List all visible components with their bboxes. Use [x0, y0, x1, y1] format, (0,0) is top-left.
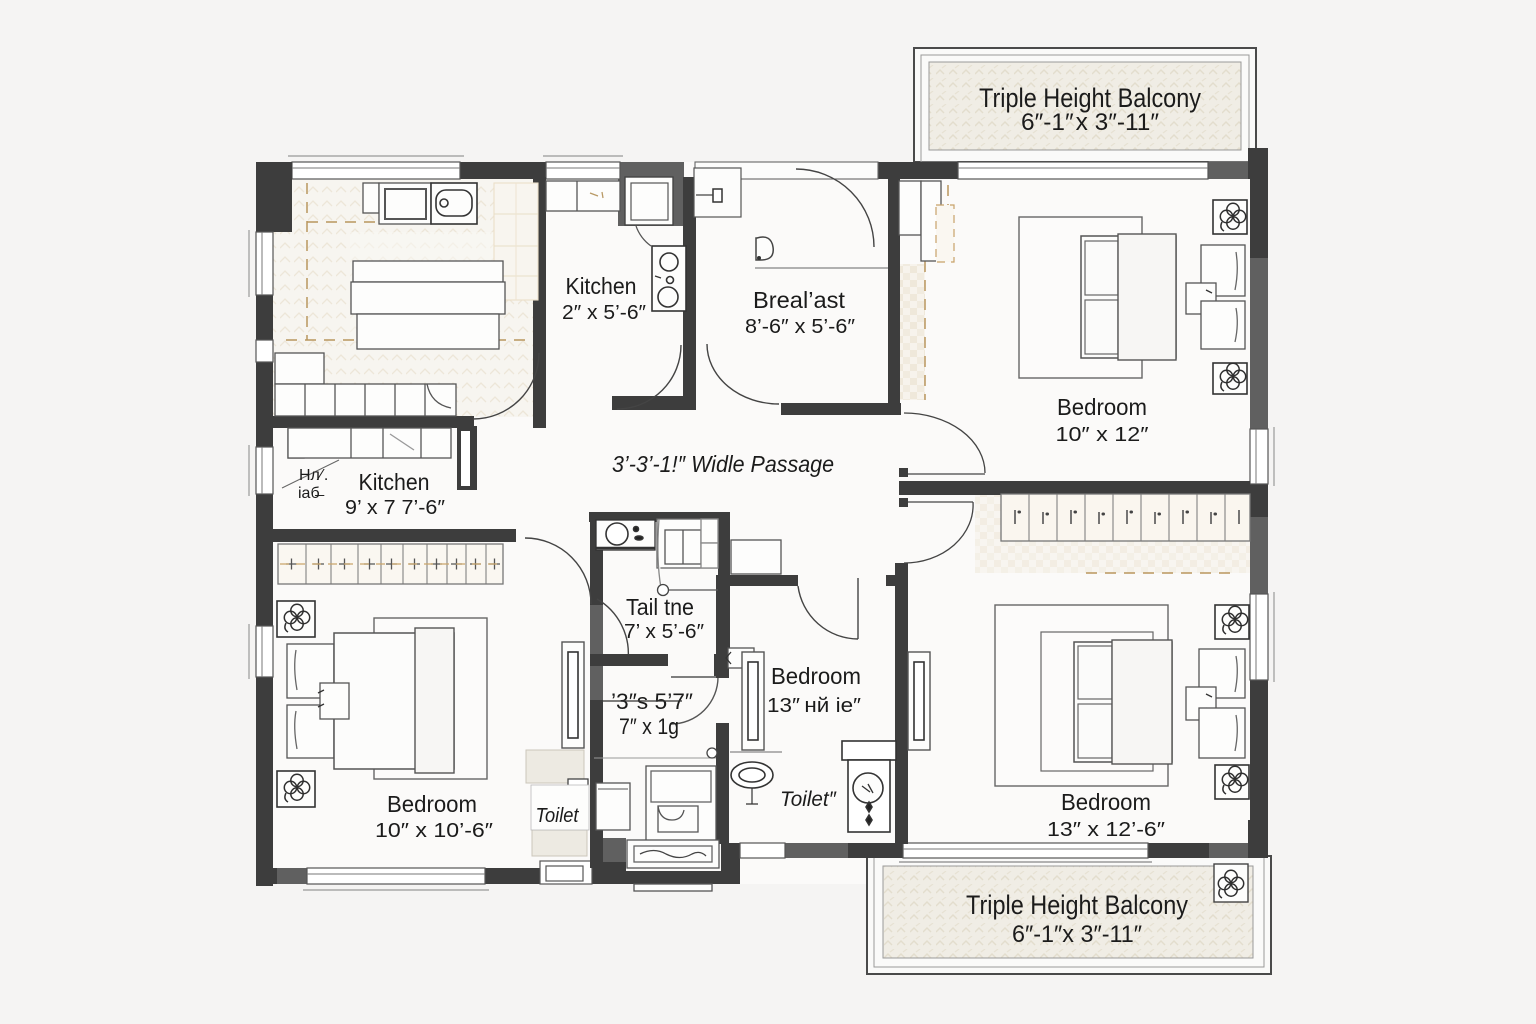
svg-text:Bedroom: Bedroom	[771, 663, 861, 689]
svg-text:13″ нй іe″: 13″ нй іe″	[767, 695, 861, 717]
svg-text:2″ x 5’-6″: 2″ x 5’-6″	[562, 302, 646, 324]
svg-text:Bedroom: Bedroom	[1061, 789, 1151, 815]
svg-text:13″ x 12’-6″: 13″ x 12’-6″	[1047, 819, 1165, 841]
svg-text:Нл∕ .: Нл∕ .	[299, 467, 328, 484]
svg-text:Kitchen: Kitchen	[566, 273, 637, 299]
svg-text:3’-3’-1!″ Widle Passage: 3’-3’-1!″ Widle Passage	[612, 451, 834, 477]
svg-text:6″-1″ x 3″-11″: 6″-1″ x 3″-11″	[1021, 109, 1160, 136]
svg-text:10″ x 10’-6″: 10″ x 10’-6″	[375, 820, 493, 842]
svg-text:Toilet″: Toilet″	[780, 788, 838, 811]
svg-text:9’ x 7 7’-6″: 9’ x 7 7’-6″	[345, 497, 445, 519]
svg-text:10″ x 12″: 10″ x 12″	[1056, 424, 1149, 446]
svg-text:7’ x 5’-6″: 7’ x 5’-6″	[624, 621, 704, 643]
svg-text:Kitchen: Kitchen	[359, 469, 430, 495]
svg-text:8’-6″ x 5’-6″: 8’-6″ x 5’-6″	[745, 316, 855, 338]
svg-text:Triple Height Balcony: Triple Height Balcony	[966, 890, 1188, 920]
svg-text:6″-1″x 3″-11″: 6″-1″x 3″-11″	[1012, 921, 1142, 948]
svg-text:Bedroom: Bedroom	[387, 791, 477, 817]
svg-text:Tail tne: Tail tne	[626, 594, 694, 620]
svg-text:Bedroom: Bedroom	[1057, 394, 1147, 420]
svg-text:Toilet: Toilet	[536, 805, 580, 827]
svg-text:7″ x 1g: 7″ x 1g	[619, 714, 679, 739]
svg-text:Breal’ast: Breal’ast	[753, 287, 845, 313]
